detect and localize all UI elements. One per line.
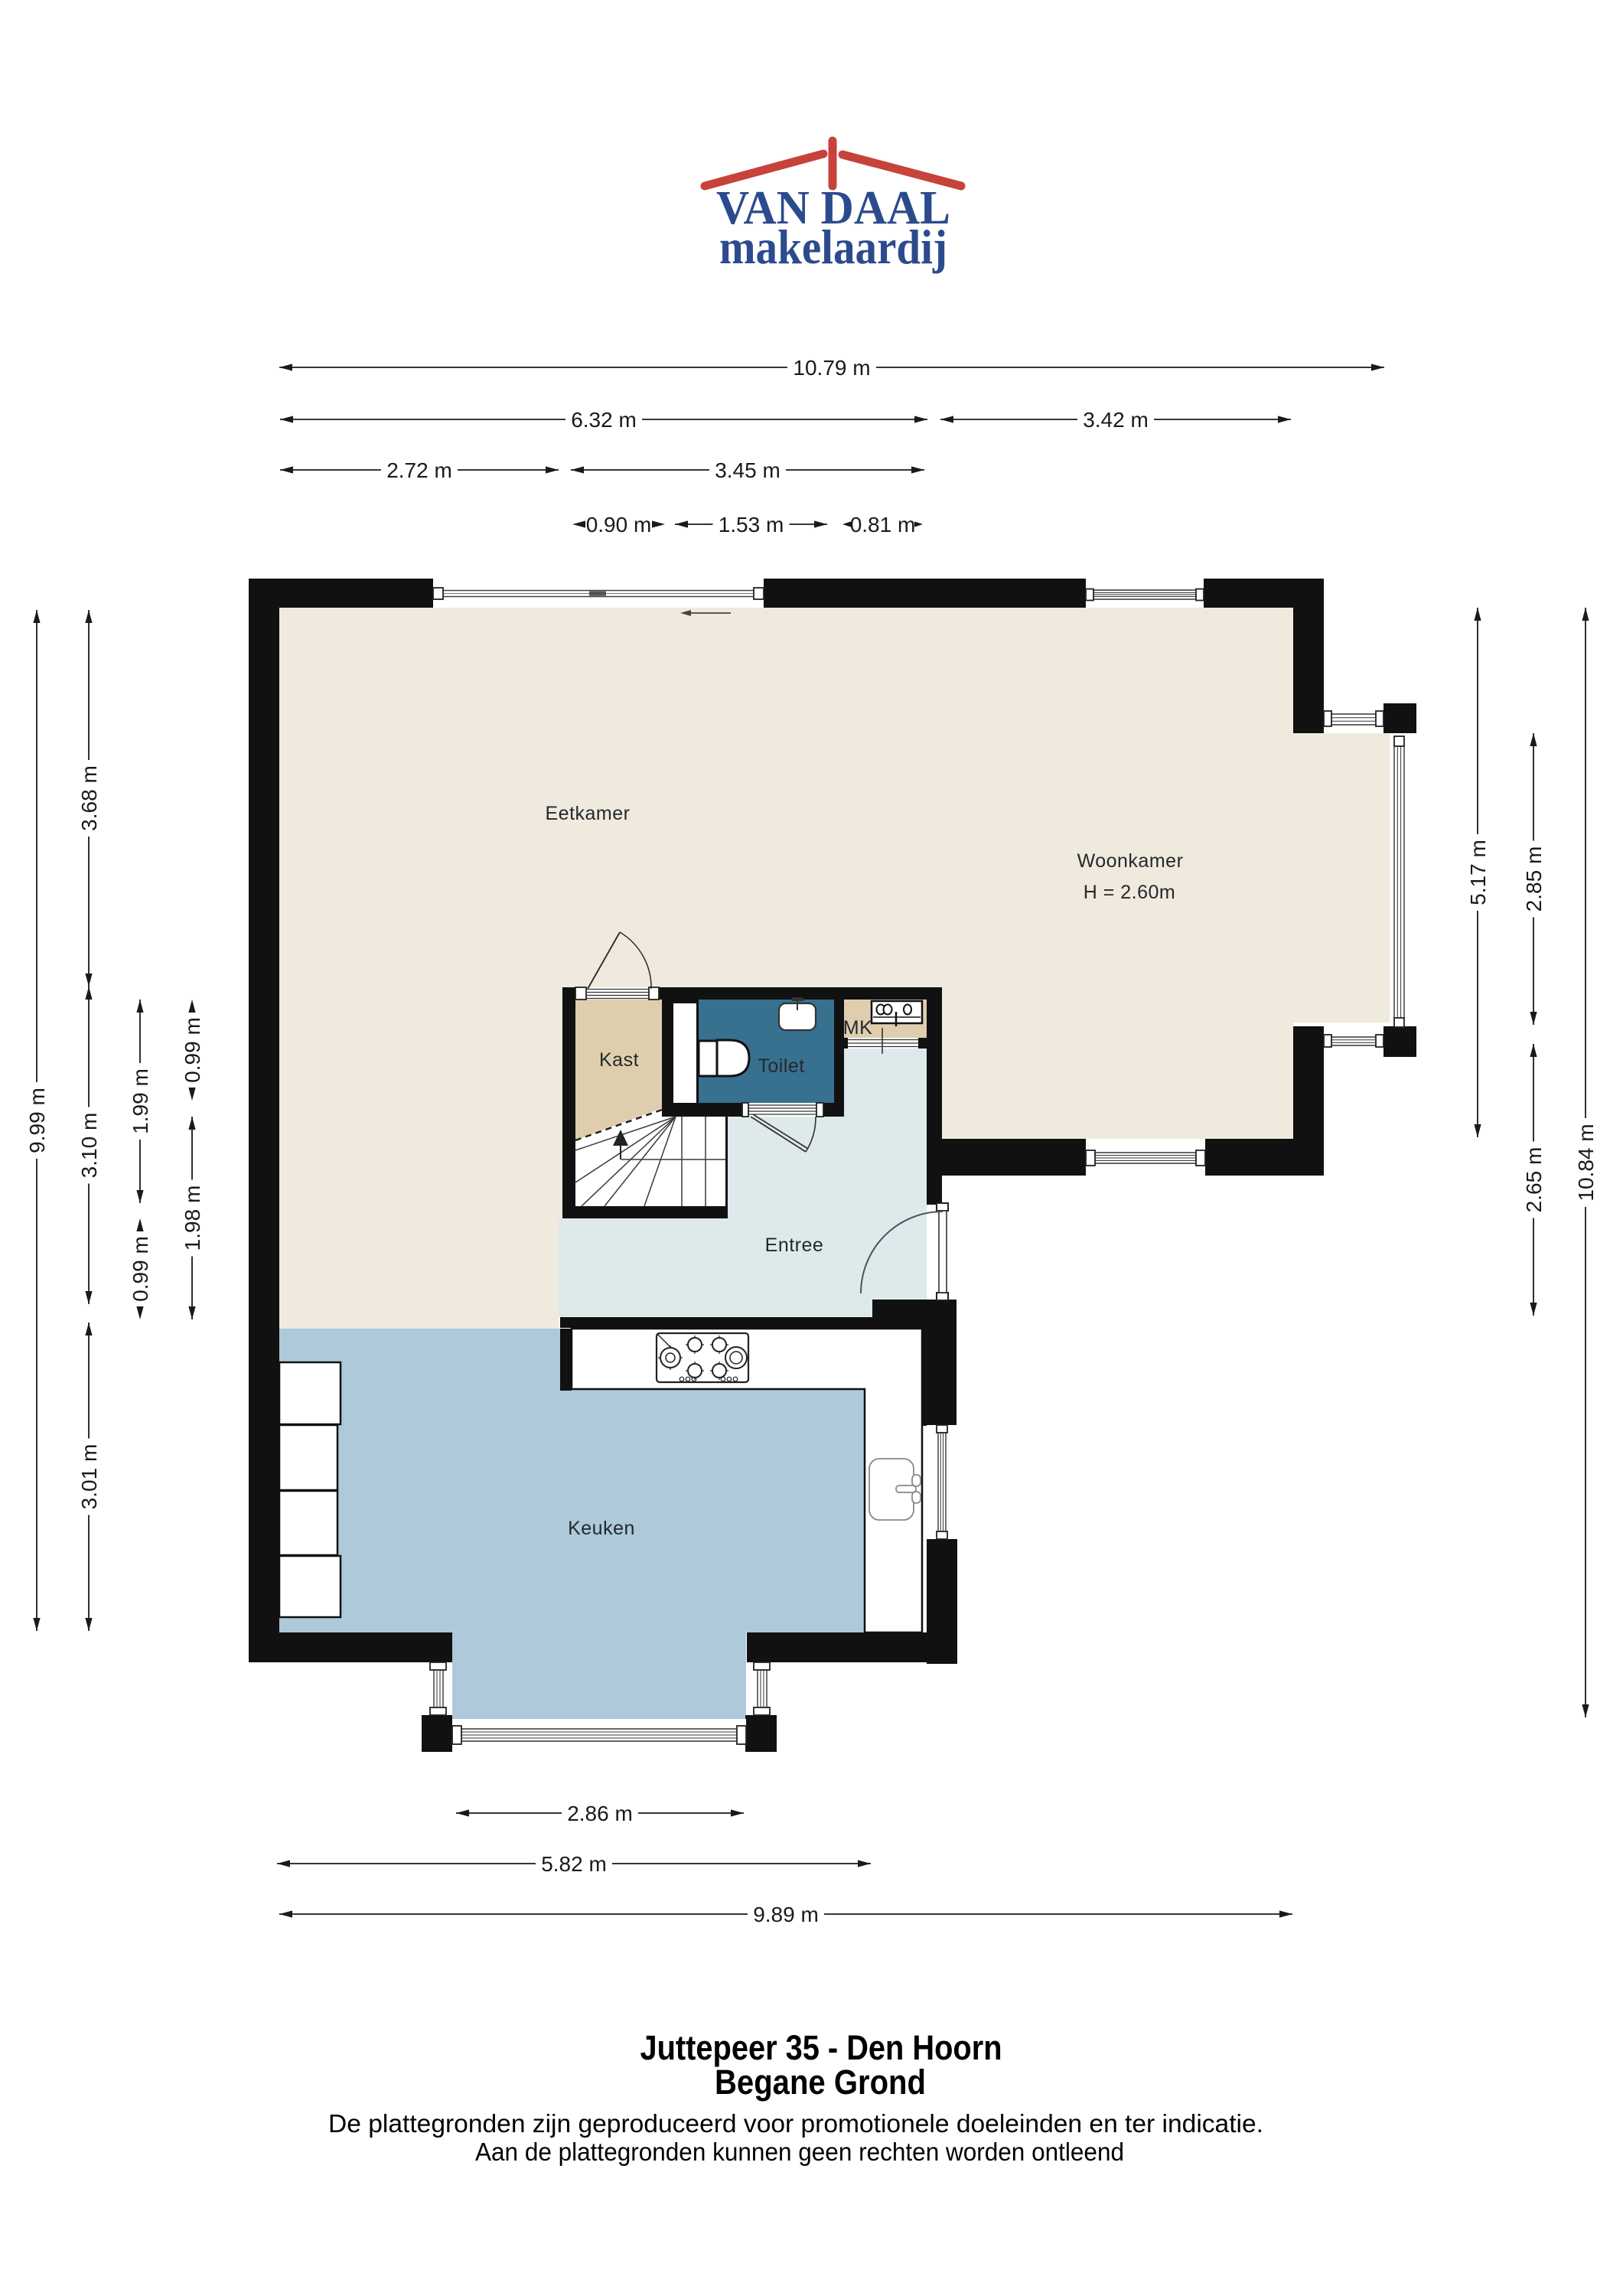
svg-text:3.42 m: 3.42 m xyxy=(1083,408,1149,432)
svg-text:makelaardij: makelaardij xyxy=(719,220,947,274)
svg-text:9.89 m: 9.89 m xyxy=(753,1903,819,1926)
svg-text:Aan de plattegronden kunnen ge: Aan de plattegronden kunnen geen rechten… xyxy=(475,2138,1124,2166)
svg-text:Begane Grond: Begane Grond xyxy=(715,2063,926,2102)
svg-text:3.68 m: 3.68 m xyxy=(77,765,101,831)
svg-text:1.99 m: 1.99 m xyxy=(129,1068,152,1134)
svg-text:0.99 m: 0.99 m xyxy=(129,1236,152,1302)
svg-text:0.81 m: 0.81 m xyxy=(850,513,916,536)
svg-text:3.10 m: 3.10 m xyxy=(77,1113,101,1179)
svg-text:10.79 m: 10.79 m xyxy=(793,356,870,380)
svg-text:1.98 m: 1.98 m xyxy=(181,1186,204,1251)
svg-text:H = 2.60m: H = 2.60m xyxy=(1084,882,1176,903)
svg-text:5.17 m: 5.17 m xyxy=(1466,840,1490,905)
svg-text:De plattegronden zijn geproduc: De plattegronden zijn geproduceerd voor … xyxy=(328,2109,1263,2138)
svg-text:1.53 m: 1.53 m xyxy=(719,513,784,536)
svg-text:Eetkamer: Eetkamer xyxy=(546,803,631,824)
svg-text:2.72 m: 2.72 m xyxy=(386,458,452,482)
svg-text:5.82 m: 5.82 m xyxy=(541,1852,607,1876)
svg-text:Woonkamer: Woonkamer xyxy=(1077,850,1184,872)
svg-text:3.01 m: 3.01 m xyxy=(77,1444,101,1510)
svg-text:3.45 m: 3.45 m xyxy=(715,458,781,482)
svg-text:MK: MK xyxy=(843,1017,873,1039)
svg-text:2.85 m: 2.85 m xyxy=(1522,846,1546,912)
svg-text:Juttepeer 35 - Den Hoorn: Juttepeer 35 - Den Hoorn xyxy=(640,2028,1002,2067)
svg-text:Kast: Kast xyxy=(599,1049,639,1071)
svg-text:Entree: Entree xyxy=(765,1234,824,1256)
svg-text:10.84 m: 10.84 m xyxy=(1574,1124,1598,1201)
svg-text:6.32 m: 6.32 m xyxy=(571,408,637,432)
svg-text:Keuken: Keuken xyxy=(568,1518,635,1539)
svg-text:Toilet: Toilet xyxy=(758,1055,804,1077)
svg-text:2.86 m: 2.86 m xyxy=(567,1802,633,1825)
svg-text:2.65 m: 2.65 m xyxy=(1522,1147,1546,1213)
svg-text:0.90 m: 0.90 m xyxy=(586,513,652,536)
svg-text:0.99 m: 0.99 m xyxy=(181,1017,204,1083)
svg-text:9.99 m: 9.99 m xyxy=(25,1088,49,1153)
